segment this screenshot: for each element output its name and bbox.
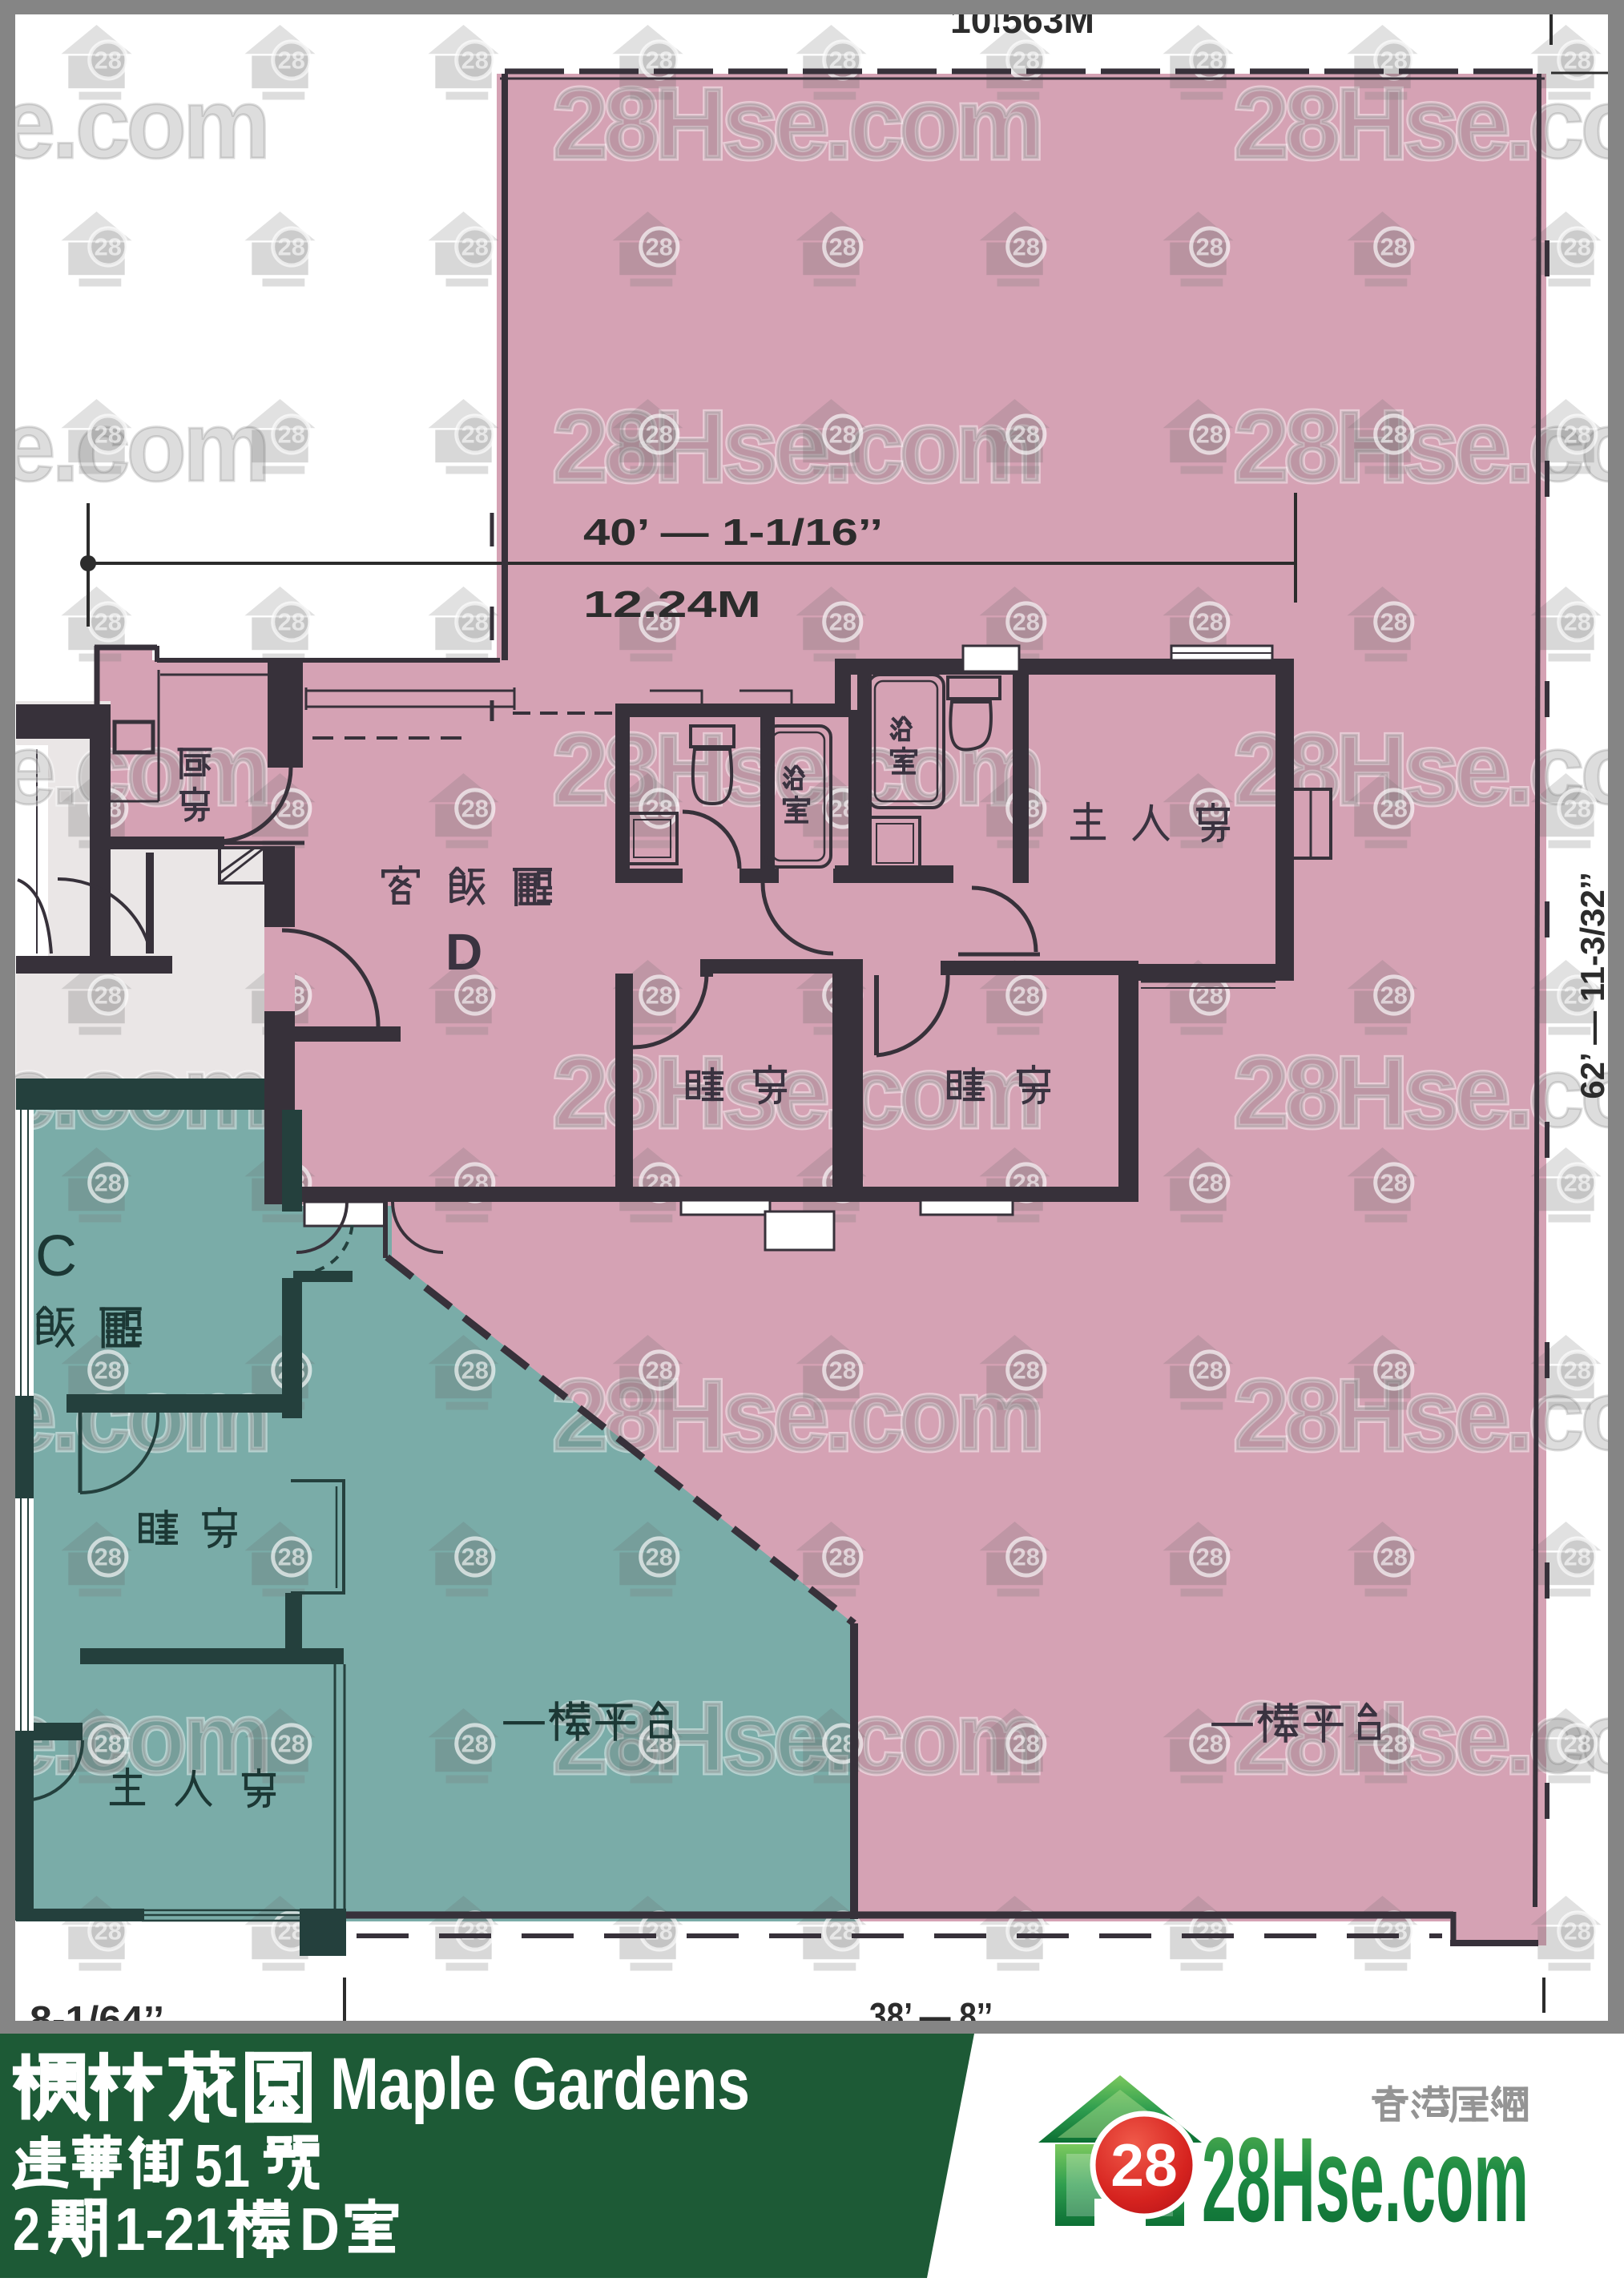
svg-text:28: 28 (1380, 232, 1408, 260)
svg-text:28: 28 (1380, 794, 1408, 822)
svg-text:D: D (300, 2195, 340, 2263)
svg-text:28: 28 (829, 1917, 856, 1945)
svg-text:28: 28 (1564, 1356, 1591, 1384)
svg-text:28: 28 (278, 420, 305, 448)
svg-text:51: 51 (195, 2132, 250, 2199)
svg-text:28: 28 (1564, 232, 1591, 260)
svg-text:28: 28 (1196, 1356, 1223, 1384)
svg-text:28: 28 (461, 1917, 489, 1945)
svg-text:28: 28 (1380, 1168, 1408, 1196)
svg-text:28: 28 (278, 1729, 305, 1757)
svg-text:28: 28 (1380, 981, 1408, 1009)
svg-text:28: 28 (1013, 607, 1040, 635)
svg-text:28: 28 (1564, 1542, 1591, 1570)
svg-text:12.24M: 12.24M (583, 583, 761, 625)
svg-text:D: D (445, 923, 482, 981)
svg-text:28: 28 (95, 420, 122, 448)
svg-text:28: 28 (646, 232, 673, 260)
svg-text:28: 28 (278, 607, 305, 635)
svg-text:28: 28 (1013, 1729, 1040, 1757)
svg-text:28: 28 (1196, 981, 1223, 1009)
svg-text:28Hse.com: 28Hse.com (0, 1361, 267, 1471)
svg-text:28: 28 (1196, 232, 1223, 260)
svg-text:28: 28 (646, 794, 673, 822)
svg-text:28: 28 (1196, 1542, 1223, 1570)
svg-text:28: 28 (1380, 1917, 1408, 1945)
svg-text:28: 28 (1013, 1356, 1040, 1384)
svg-text:28: 28 (278, 232, 305, 260)
svg-text:28: 28 (461, 1542, 489, 1570)
svg-text:28: 28 (646, 420, 673, 448)
svg-text:28: 28 (1564, 420, 1591, 448)
svg-text:28: 28 (1196, 1917, 1223, 1945)
svg-text:28: 28 (1380, 1542, 1408, 1570)
svg-text:28: 28 (278, 1542, 305, 1570)
svg-text:28: 28 (1564, 794, 1591, 822)
svg-text:28: 28 (1196, 607, 1223, 635)
svg-text:28: 28 (1110, 2131, 1177, 2199)
svg-text:28Hse.com: 28Hse.com (1202, 2112, 1529, 2247)
svg-text:28: 28 (95, 1168, 122, 1196)
svg-text:28: 28 (461, 607, 489, 635)
svg-text:28: 28 (461, 794, 489, 822)
svg-text:28: 28 (829, 607, 856, 635)
svg-text:28: 28 (1013, 1917, 1040, 1945)
svg-text:28: 28 (1013, 981, 1040, 1009)
svg-text:28Hse.com: 28Hse.com (1234, 1038, 1624, 1148)
svg-text:2: 2 (13, 2195, 40, 2263)
svg-text:28: 28 (95, 232, 122, 260)
svg-text:28: 28 (1564, 607, 1591, 635)
svg-text:28: 28 (1196, 420, 1223, 448)
svg-text:28: 28 (461, 232, 489, 260)
svg-text:1-21: 1-21 (115, 2195, 225, 2263)
svg-text:28: 28 (461, 1356, 489, 1384)
svg-text:28: 28 (646, 1917, 673, 1945)
svg-text:28: 28 (829, 420, 856, 448)
svg-text:28: 28 (646, 1356, 673, 1384)
svg-text:28: 28 (646, 981, 673, 1009)
svg-text:28: 28 (829, 232, 856, 260)
svg-text:28: 28 (461, 46, 489, 74)
svg-text:28: 28 (1013, 420, 1040, 448)
svg-text:28: 28 (1380, 420, 1408, 448)
svg-text:28: 28 (95, 1356, 122, 1384)
svg-text:28: 28 (95, 1729, 122, 1757)
svg-text:28: 28 (1564, 1917, 1591, 1945)
svg-text:28: 28 (95, 1542, 122, 1570)
svg-text:40’ — 1-1/16’’: 40’ — 1-1/16’’ (583, 511, 883, 553)
svg-text:28: 28 (461, 420, 489, 448)
svg-text:28: 28 (829, 1356, 856, 1384)
svg-text:Maple Gardens: Maple Gardens (330, 2043, 750, 2125)
svg-text:28: 28 (1564, 46, 1591, 74)
svg-text:28: 28 (461, 1729, 489, 1757)
svg-text:28: 28 (1013, 232, 1040, 260)
svg-text:28: 28 (1564, 1168, 1591, 1196)
svg-text:28: 28 (829, 1542, 856, 1570)
svg-text:28: 28 (278, 46, 305, 74)
svg-text:28: 28 (95, 607, 122, 635)
svg-text:C: C (35, 1224, 77, 1288)
svg-text:62’ — 11-3/32’’: 62’ — 11-3/32’’ (1574, 872, 1611, 1099)
svg-text:28: 28 (1380, 607, 1408, 635)
svg-text:28: 28 (95, 981, 122, 1009)
svg-text:28: 28 (1196, 1168, 1223, 1196)
svg-text:28: 28 (1013, 1542, 1040, 1570)
svg-text:28: 28 (646, 1542, 673, 1570)
svg-text:28: 28 (95, 46, 122, 74)
svg-text:28: 28 (461, 981, 489, 1009)
svg-text:28: 28 (1380, 1356, 1408, 1384)
svg-text:28Hse.com: 28Hse.com (0, 69, 267, 179)
svg-text:28: 28 (1196, 1729, 1223, 1757)
svg-text:28: 28 (1564, 1729, 1591, 1757)
svg-text:28: 28 (1380, 1729, 1408, 1757)
svg-text:28Hse.com: 28Hse.com (553, 1683, 1040, 1794)
svg-text:28Hse.com: 28Hse.com (0, 392, 267, 502)
